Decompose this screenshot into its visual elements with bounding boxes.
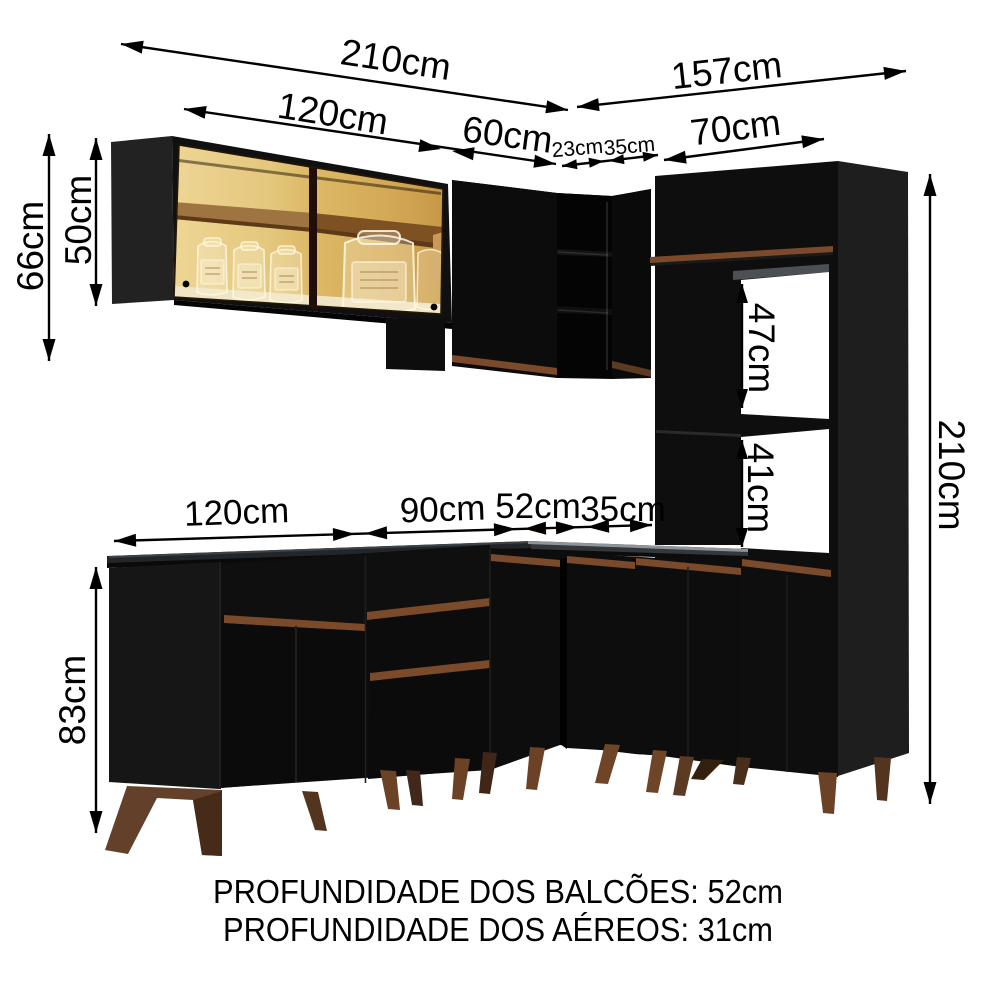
- svg-text:PROFUNDIDADE DOS AÉREOS: 31cm: PROFUNDIDADE DOS AÉREOS: 31cm: [223, 911, 773, 948]
- svg-text:90cm: 90cm: [399, 489, 486, 531]
- svg-text:120cm: 120cm: [183, 491, 289, 534]
- svg-text:66cm: 66cm: [10, 201, 51, 291]
- svg-text:52cm: 52cm: [495, 487, 581, 526]
- svg-text:83cm: 83cm: [52, 655, 93, 745]
- svg-text:50cm: 50cm: [58, 175, 99, 265]
- svg-text:210cm: 210cm: [931, 419, 972, 530]
- svg-text:35cm: 35cm: [603, 133, 656, 160]
- svg-text:47cm: 47cm: [741, 303, 782, 393]
- svg-text:PROFUNDIDADE DOS BALCÕES: 52cm: PROFUNDIDADE DOS BALCÕES: 52cm: [213, 873, 783, 910]
- svg-text:35cm: 35cm: [580, 490, 666, 529]
- svg-text:41cm: 41cm: [740, 443, 781, 533]
- svg-text:23cm: 23cm: [551, 135, 604, 162]
